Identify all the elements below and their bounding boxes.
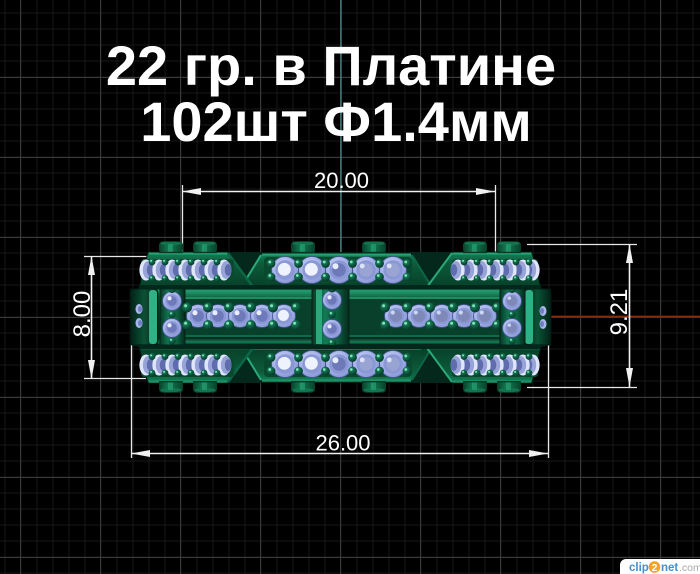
svg-text:2: 2 — [652, 562, 658, 574]
svg-text:102шт Ф1.4мм: 102шт Ф1.4мм — [140, 90, 532, 153]
svg-text:clip: clip — [629, 562, 649, 574]
svg-text:22 гр. в Платине: 22 гр. в Платине — [106, 34, 556, 97]
svg-text:26.00: 26.00 — [315, 431, 370, 456]
svg-text:9.21: 9.21 — [606, 289, 633, 336]
svg-text:net: net — [661, 562, 678, 574]
svg-text:20.00: 20.00 — [314, 168, 369, 193]
svg-text:8.00: 8.00 — [69, 291, 96, 338]
svg-text:.com: .com — [679, 562, 700, 574]
